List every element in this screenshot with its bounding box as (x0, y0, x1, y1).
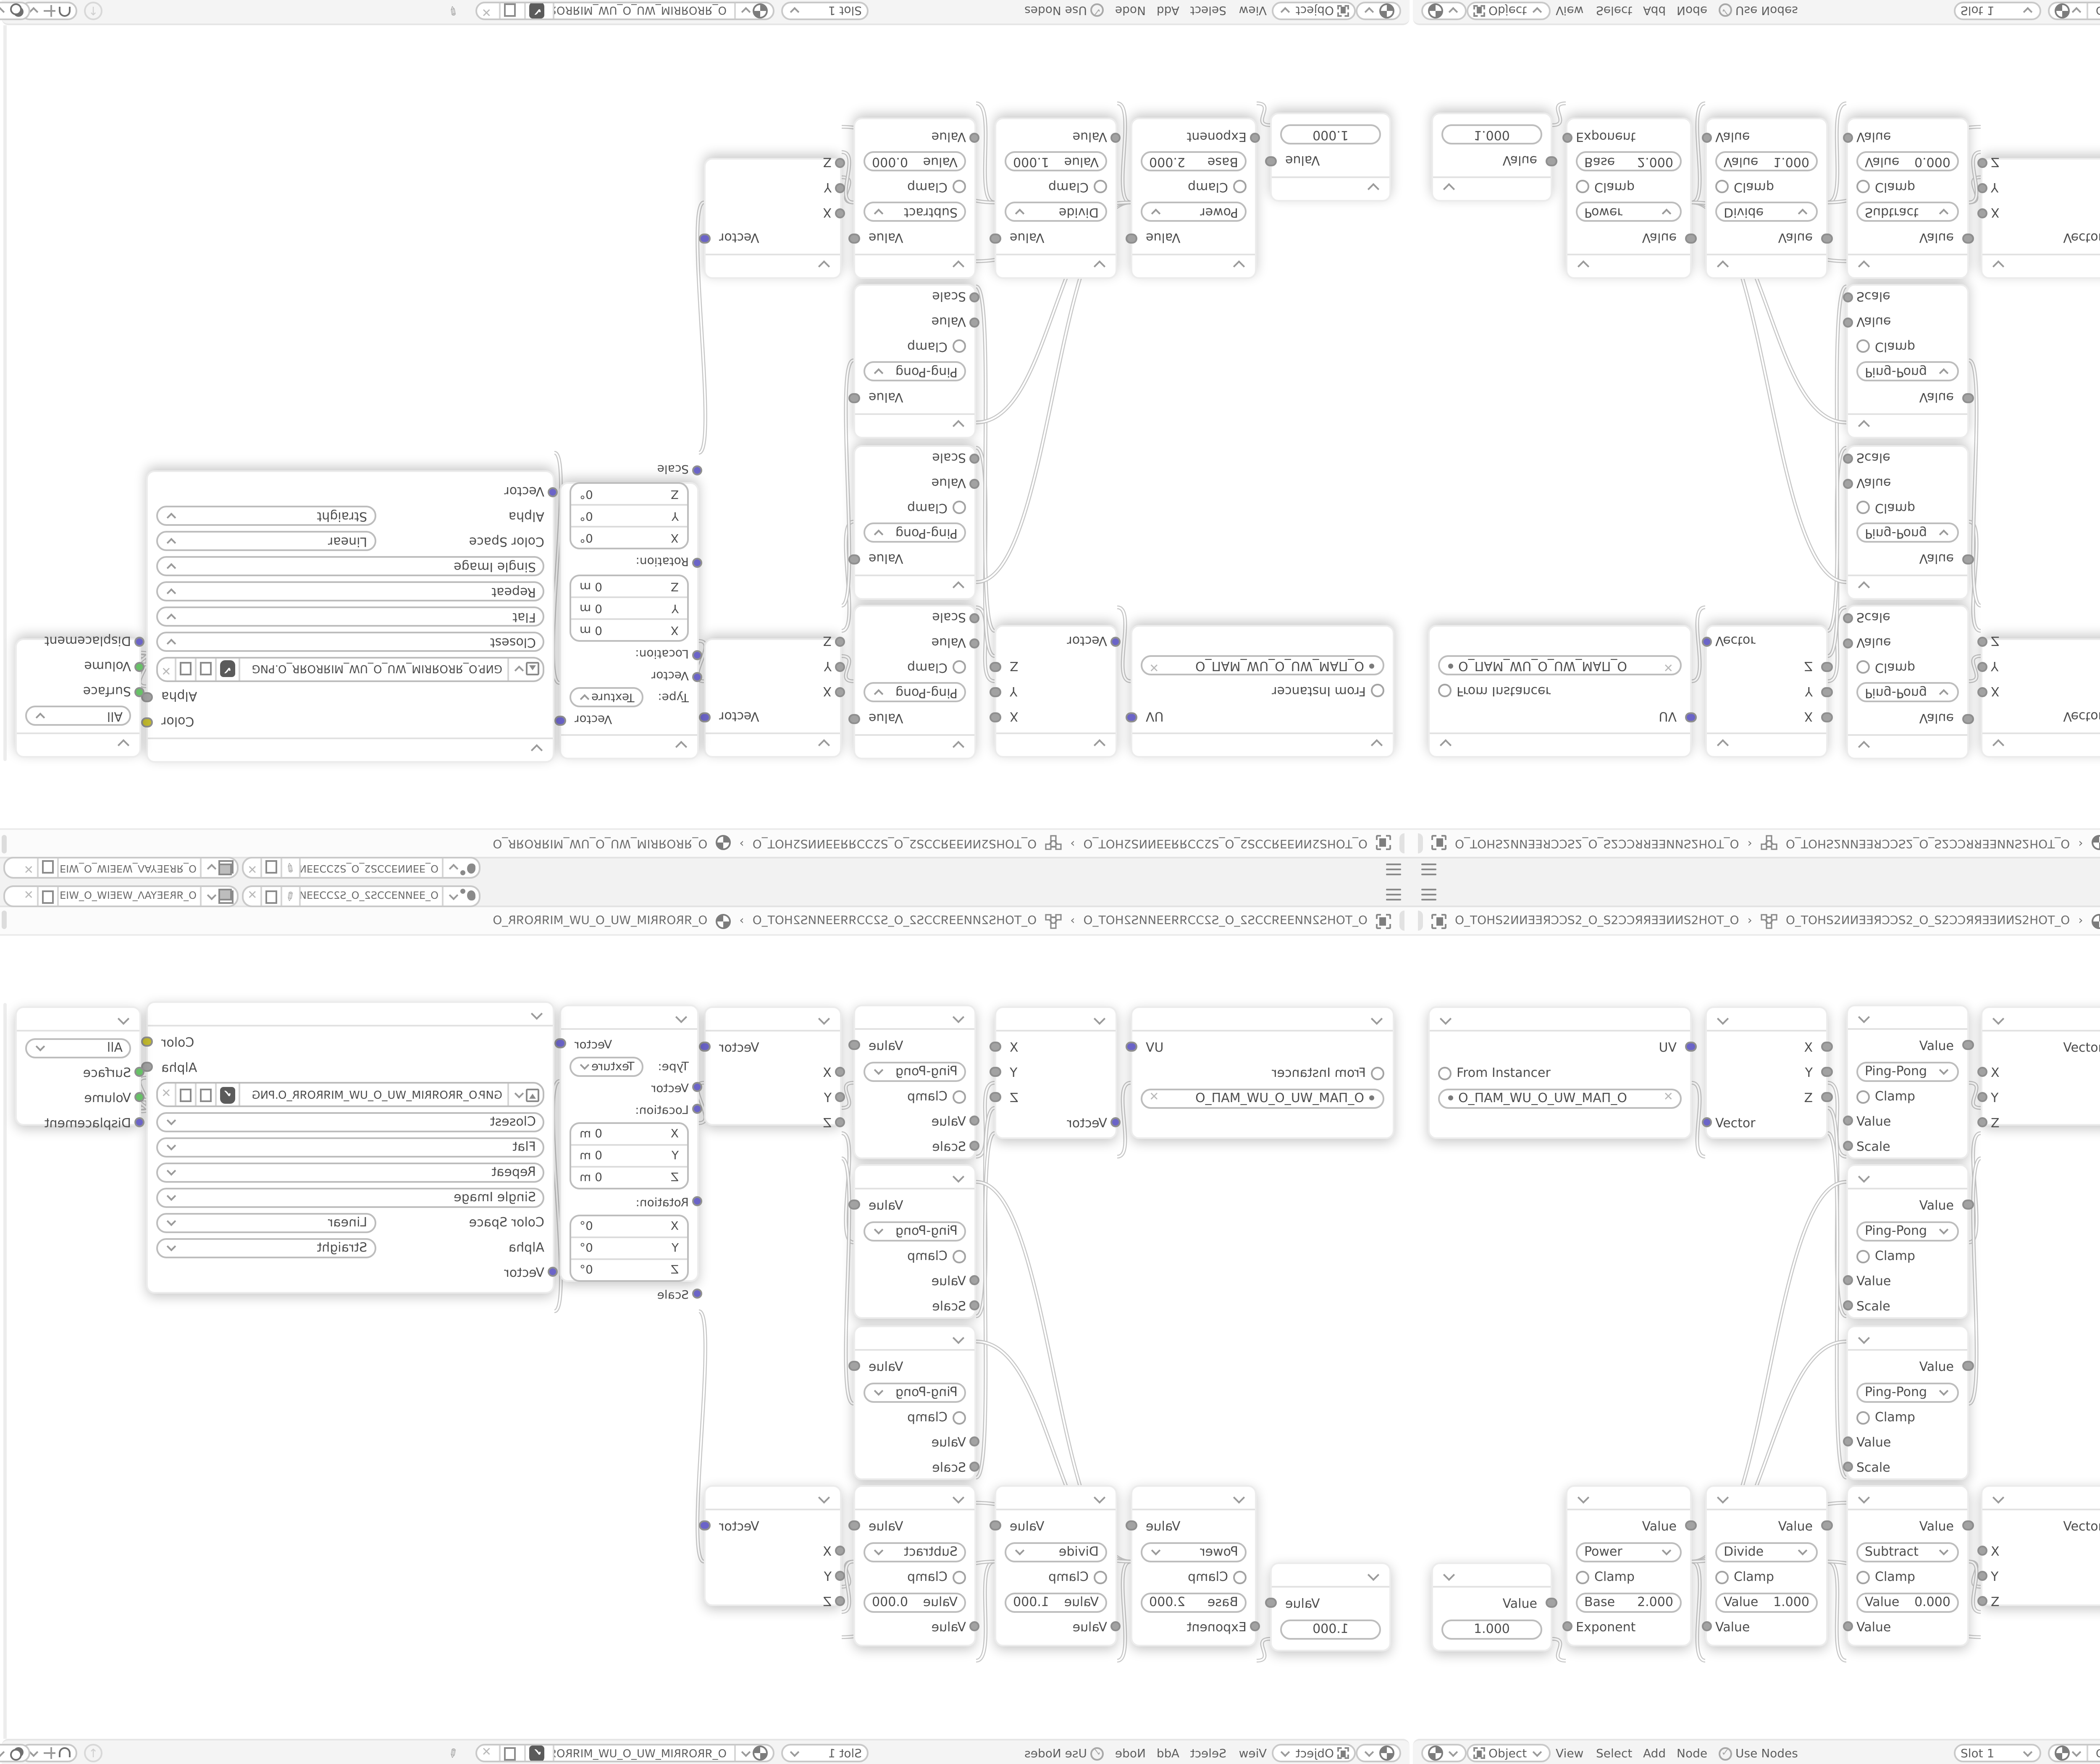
view-layer-icon[interactable] (200, 887, 237, 906)
node-header[interactable] (1707, 254, 1826, 277)
socket-exponent-in[interactable] (1562, 133, 1572, 144)
dropdown-color-space[interactable]: Linear (156, 532, 375, 552)
checkbox-clamp[interactable] (1715, 181, 1729, 194)
new-image-button[interactable] (195, 1084, 215, 1105)
vector-field-y[interactable]: Y0 m (571, 596, 687, 618)
dropdown-divide[interactable]: Divide (1005, 1541, 1107, 1562)
node-header[interactable] (148, 1003, 553, 1026)
node-header[interactable] (1848, 1327, 1967, 1351)
dropdown-alpha[interactable]: Straight (156, 1237, 375, 1257)
node-value[interactable]: Value1.000 (1431, 113, 1552, 202)
vector-field-x[interactable]: X0 m (571, 618, 687, 640)
material-selector[interactable]: O_ЯROЯRIM_WU_O_UW_MIЯROЯR_O ✔ ✕ (2048, 2, 2100, 20)
socket-location-in[interactable] (692, 650, 703, 661)
node-material-output[interactable]: AllSurfaceVolumeDisplacement (15, 638, 141, 758)
node-header[interactable] (1132, 732, 1393, 756)
new-material-button[interactable] (499, 1746, 521, 1761)
dropdown-ping-pong[interactable]: Ping-Pong (864, 1221, 966, 1241)
socket-volume-in[interactable] (134, 1091, 145, 1102)
socket-value-out[interactable] (990, 1520, 1001, 1530)
value-field[interactable]: Value1.000 (1005, 1592, 1107, 1612)
dropdown-power[interactable]: Power (1141, 202, 1247, 223)
menu-view[interactable]: View (1547, 1744, 1592, 1762)
socket-exponent-in[interactable] (1562, 1620, 1572, 1631)
value-field[interactable]: Value1.000 (1005, 152, 1107, 172)
checkbox-clamp[interactable] (953, 501, 966, 515)
view-layer-selector[interactable]: O_ЯRƎEYAΛ_WƎEIW_O_WIƎEW_ΛAYƎEЯR_O ✕ (3, 885, 239, 907)
node-canvas[interactable]: UVFrom InstancerO_ПAM_WU_O_UW_MAП_O✕XYZV… (0, 25, 1411, 828)
node-separate-xyz[interactable]: XYZVector (995, 625, 1117, 758)
uv-map-field[interactable]: O_ПAM_WU_O_UW_MAП_O✕ (1438, 656, 1682, 676)
pack-image-button[interactable] (175, 659, 195, 680)
node-math-subtract[interactable]: ValueSubtractClampValue0.000Value (853, 118, 976, 279)
shader-type-dropdown[interactable]: Object (1272, 2, 1356, 20)
dropdown-divide[interactable]: Divide (1715, 202, 1818, 223)
dropdown-closest[interactable]: Closest (156, 1111, 544, 1131)
pack-image-button[interactable] (175, 1084, 195, 1105)
socket-y-out[interactable] (1821, 687, 1832, 698)
material-browse-icon[interactable] (2050, 3, 2088, 18)
node-header[interactable] (706, 254, 840, 277)
node-mapping[interactable]: VectorType:TextureVectorLocation:X0 mY0 … (559, 482, 699, 759)
pin-icon[interactable]: ✎ (281, 858, 299, 877)
checkbox-clamp[interactable] (1856, 1249, 1870, 1263)
socket-x-in[interactable] (835, 1545, 846, 1556)
socket-scale-in[interactable] (1842, 613, 1853, 624)
checkbox-clamp[interactable] (953, 1089, 966, 1103)
node-header[interactable] (1132, 254, 1255, 277)
node-header[interactable] (1272, 176, 1389, 200)
node-canvas[interactable]: UVFrom InstancerO_ПAM_WU_O_UW_MAП_O✕XYZV… (1411, 25, 2100, 828)
vector-field-x[interactable]: X0° (571, 526, 687, 548)
socket-value-out[interactable] (1685, 1520, 1696, 1530)
node-header[interactable] (1430, 732, 1690, 756)
dropdown-divide[interactable]: Divide (1005, 202, 1107, 223)
material-name[interactable]: O_ЯROЯRIM_WU_O_UW_MIЯROЯR_O (553, 3, 731, 18)
canvas-scrollbar[interactable] (3, 25, 8, 761)
socket-scale-in[interactable] (969, 1140, 980, 1151)
socket-z-in[interactable] (835, 158, 846, 169)
menu-view[interactable]: View (1547, 2, 1592, 20)
dropdown-ping-pong[interactable]: Ping-Pong (1856, 1382, 1959, 1402)
shader-type-dropdown[interactable]: Object (1272, 1744, 1356, 1762)
node-image-texture[interactable]: ColorAlphaGИP.O_ЯROЯRIM_WU_O_UW_MIЯROЯR_… (146, 470, 554, 763)
checkbox-clamp[interactable] (953, 661, 966, 675)
scene-name[interactable]: O_ƎƎИИƎƆƆS2_O_S2ƆƆƎƎИ... (299, 887, 442, 906)
socket-scale-in[interactable] (1842, 1299, 1853, 1310)
vector-field-z[interactable]: Z0° (571, 1260, 687, 1280)
node-header[interactable] (1433, 176, 1551, 200)
uv-map-field[interactable]: O_ПAM_WU_O_UW_MAП_O✕ (1141, 656, 1384, 676)
checkbox-clamp[interactable] (1856, 1410, 1870, 1424)
uv-map-field[interactable]: O_ПAM_WU_O_UW_MAП_O✕ (1141, 1088, 1384, 1108)
socket-vector-out[interactable] (555, 715, 566, 726)
socket-value-out[interactable] (1266, 1597, 1277, 1608)
vector-field-x[interactable]: X0 m (571, 1124, 687, 1146)
socket-z-out[interactable] (990, 1091, 1001, 1102)
scene-icon[interactable] (442, 858, 479, 877)
node-header[interactable] (17, 732, 139, 756)
unlink-material-button[interactable]: ✕ (478, 3, 496, 18)
dropdown-color-space[interactable]: Linear (156, 1212, 375, 1232)
new-view-layer-button[interactable] (37, 887, 57, 906)
scene-icon[interactable] (442, 887, 479, 906)
checkbox-clamp[interactable] (1576, 1570, 1589, 1583)
dropdown-all[interactable]: All (25, 706, 131, 727)
dropdown-subtract[interactable]: Subtract (864, 1541, 966, 1562)
dropdown-closest[interactable]: Closest (156, 633, 544, 653)
socket-value-out[interactable] (1126, 234, 1137, 244)
node-math-subtract[interactable]: ValueSubtractClampValue0.000Value (1846, 1485, 1969, 1646)
socket-exponent-in[interactable] (1250, 133, 1261, 144)
vector-field-z[interactable]: Z0 m (571, 576, 687, 596)
vector-field-y[interactable]: Y0 m (571, 1146, 687, 1168)
vector-field-x[interactable]: X0° (571, 1216, 687, 1238)
use-nodes-checkbox[interactable]: ✓Use Nodes (1024, 1744, 1104, 1762)
dropdown-ping-pong[interactable]: Ping-Pong (864, 523, 966, 543)
node-uv-map[interactable]: UVFrom InstancerO_ПAM_WU_O_UW_MAП_O✕ (1428, 1006, 1692, 1139)
node-header[interactable] (1132, 1487, 1255, 1510)
node-header[interactable] (855, 734, 974, 758)
node-combine-xyz-2[interactable]: VectorXYZ (704, 158, 842, 279)
canvas-scrollbar[interactable] (3, 1003, 8, 1739)
socket-z-in[interactable] (1977, 637, 1987, 648)
image-filename[interactable]: GИP.O_ЯROЯRIM_WU_O_UW_MIЯROЯR_O.PNG (239, 659, 508, 680)
value-field[interactable]: Value0.000 (864, 152, 966, 172)
node-math-divide[interactable]: ValueDivideClampValue1.000Value (995, 1485, 1117, 1646)
fake-user-button[interactable]: ✔ (215, 1084, 239, 1105)
node-combine-xyz-2[interactable]: VectorXYZ (1981, 158, 2100, 279)
fake-user-button[interactable]: ✔ (524, 1746, 549, 1761)
node-header[interactable] (706, 1008, 840, 1032)
gpu-preview-button[interactable]: ↑ (84, 1744, 102, 1762)
socket-value-in[interactable] (1842, 133, 1853, 144)
socket-vector-out[interactable] (700, 1520, 711, 1530)
remove-view-layer-button[interactable]: ✕ (21, 858, 37, 877)
uv-map-field[interactable]: O_ПAM_WU_O_UW_MAП_O✕ (1438, 1088, 1682, 1108)
node-canvas[interactable]: UVFrom InstancerO_ПAM_WU_O_UW_MAП_O✕XYZV… (0, 936, 1411, 1739)
dropdown-power[interactable]: Power (1141, 1541, 1247, 1562)
overlays-toggle[interactable] (0, 2, 30, 20)
dropdown-all[interactable]: All (25, 1037, 131, 1058)
socket-value-in[interactable] (1110, 133, 1121, 144)
socket-value-out[interactable] (849, 1520, 860, 1530)
node-math-pingpong-2[interactable]: ValuePing-PongClampValueScale (1846, 445, 1969, 600)
node-header[interactable] (996, 1487, 1116, 1510)
node-math-pingpong-2[interactable]: ValuePing-PongClampValueScale (1846, 1164, 1969, 1319)
socket-vector-out[interactable] (555, 1038, 566, 1049)
pin-icon[interactable]: ✎ (281, 887, 299, 906)
socket-value-out[interactable] (1266, 156, 1277, 167)
socket-value-in[interactable] (1110, 1620, 1121, 1631)
dropdown-ping-pong[interactable]: Ping-Pong (1856, 362, 1959, 382)
socket-x-out[interactable] (1821, 712, 1832, 723)
socket-x-out[interactable] (1821, 1041, 1832, 1052)
menu-node[interactable]: Node (1107, 1744, 1154, 1762)
material-browse-icon[interactable] (734, 1746, 773, 1761)
fake-user-button[interactable]: ✔ (524, 3, 549, 18)
value-field[interactable]: Base2.000 (1576, 1592, 1682, 1612)
dropdown-subtract[interactable]: Subtract (1856, 202, 1959, 223)
view-layer-icon[interactable] (200, 858, 237, 877)
node-canvas[interactable]: UVFrom InstancerO_ПAM_WU_O_UW_MAП_O✕XYZV… (1411, 936, 2100, 1739)
material-name[interactable]: O_ЯROЯRIM_WU_O_UW_MIЯROЯR_O (2092, 1746, 2100, 1761)
socket-value-out[interactable] (1962, 1520, 1973, 1530)
node-math-divide[interactable]: ValueDivideClampValue1.000Value (1705, 118, 1828, 279)
menu-select[interactable]: Select (1588, 2, 1641, 20)
value-field[interactable]: Value0.000 (864, 1592, 966, 1612)
menu-node[interactable]: Node (1668, 1744, 1716, 1762)
vector-field-z[interactable]: Z0° (571, 484, 687, 504)
node-header[interactable] (1848, 254, 1967, 277)
node-combine-xyz-1[interactable]: VectorXYZ (1981, 1006, 2100, 1126)
socket-scale-in[interactable] (969, 613, 980, 624)
socket-value-out[interactable] (849, 234, 860, 244)
value-field[interactable]: Value1.000 (1715, 1592, 1818, 1612)
value-field[interactable]: 1.000 (1280, 1619, 1381, 1639)
socket-value-in[interactable] (969, 1620, 980, 1631)
unlink-material-button[interactable]: ✕ (478, 1746, 496, 1761)
editor-type-button[interactable] (1356, 1744, 1401, 1762)
image-selector[interactable]: GИP.O_ЯROЯRIM_WU_O_UW_MIЯROЯR_O.PNG✔✕ (156, 1082, 544, 1107)
node-math-pingpong-1[interactable]: ValuePing-PongClampValueScale (1846, 605, 1969, 759)
value-field[interactable]: Base2.000 (1141, 1592, 1247, 1612)
socket-vector-in[interactable] (692, 672, 703, 682)
socket-rotation-in[interactable] (692, 1196, 703, 1207)
menu-select[interactable]: Select (1182, 2, 1235, 20)
socket-value-in[interactable] (1842, 1115, 1853, 1126)
socket-z-in[interactable] (1977, 1595, 1987, 1606)
socket-value-out[interactable] (1962, 554, 1973, 565)
socket-exponent-in[interactable] (1250, 1620, 1261, 1631)
socket-y-in[interactable] (835, 662, 846, 673)
checkbox-clamp[interactable] (1715, 1570, 1729, 1583)
socket-vector-in[interactable] (548, 1266, 559, 1277)
socket-value-in[interactable] (1842, 1436, 1853, 1446)
checkbox-from-instancer[interactable] (1438, 685, 1452, 698)
menu-hamburger-icon[interactable] (1421, 889, 1436, 900)
node-math-pingpong-3[interactable]: ValuePing-PongClampValueScale (1846, 284, 1969, 438)
dropdown-ping-pong[interactable]: Ping-Pong (864, 1382, 966, 1402)
fake-user-button[interactable]: ✔ (215, 659, 239, 680)
editor-type-button[interactable] (1421, 1744, 1467, 1762)
node-header[interactable] (855, 1327, 974, 1351)
vector-field-y[interactable]: Y0° (571, 1238, 687, 1260)
socket-uv-out[interactable] (1685, 1041, 1696, 1052)
checkbox-clamp[interactable] (953, 1570, 966, 1583)
node-header[interactable] (1982, 732, 2100, 756)
socket-scale-in[interactable] (969, 1461, 980, 1472)
node-header[interactable] (1272, 1564, 1389, 1588)
node-header[interactable] (1430, 1008, 1690, 1032)
dropdown-repeat[interactable]: Repeat (156, 1162, 544, 1182)
value-field[interactable]: 1.000 (1441, 125, 1542, 145)
node-math-power[interactable]: ValuePowerClampBase2.000Exponent (1566, 1485, 1692, 1646)
socket-x-out[interactable] (990, 1041, 1001, 1052)
socket-scale-in[interactable] (1842, 292, 1853, 303)
window-edge-handle[interactable] (2, 911, 7, 929)
socket-z-out[interactable] (990, 662, 1001, 673)
node-math-subtract[interactable]: ValueSubtractClampValue0.000Value (853, 1485, 976, 1646)
dropdown-ping-pong[interactable]: Ping-Pong (864, 362, 966, 382)
node-combine-xyz-2[interactable]: VectorXYZ (704, 1485, 842, 1606)
checkbox-clamp[interactable] (1856, 340, 1870, 354)
socket-scale-in[interactable] (692, 1288, 703, 1299)
area-corner-handle[interactable] (1399, 833, 1404, 853)
node-header[interactable] (1567, 254, 1690, 277)
socket-y-out[interactable] (1821, 1066, 1832, 1077)
node-header[interactable] (1132, 1008, 1393, 1032)
use-nodes-checkbox[interactable]: ✓Use Nodes (1024, 2, 1104, 20)
socket-vector-in[interactable] (1110, 1116, 1121, 1127)
socket-value-out[interactable] (1546, 156, 1557, 167)
node-math-power[interactable]: ValuePowerClampBase2.000Exponent (1566, 118, 1692, 279)
node-header[interactable] (996, 732, 1116, 756)
node-math-pingpong-2[interactable]: ValuePing-PongClampValueScale (853, 445, 976, 600)
node-math-pingpong-1[interactable]: ValuePing-PongClampValueScale (853, 1005, 976, 1159)
pin-id-button[interactable]: ✎ (449, 2, 459, 20)
node-header[interactable] (561, 1006, 697, 1030)
dropdown-flat[interactable]: Flat (156, 607, 544, 627)
node-math-pingpong-3[interactable]: ValuePing-PongClampValueScale (853, 1326, 976, 1480)
checkbox-clamp[interactable] (953, 181, 966, 194)
socket-value-out[interactable] (849, 1199, 860, 1210)
socket-vector-out[interactable] (700, 712, 711, 723)
remove-view-layer-button[interactable]: ✕ (21, 887, 37, 906)
node-math-power[interactable]: ValuePowerClampBase2.000Exponent (1131, 118, 1257, 279)
socket-scale-in[interactable] (1842, 1140, 1853, 1151)
socket-x-in[interactable] (1977, 208, 1987, 219)
socket-y-in[interactable] (1977, 662, 1987, 673)
value-field[interactable]: Value1.000 (1715, 152, 1818, 172)
use-nodes-checkbox[interactable]: ✓Use Nodes (1719, 2, 1798, 20)
socket-scale-in[interactable] (969, 1299, 980, 1310)
node-header[interactable] (148, 738, 553, 761)
socket-value-out[interactable] (1962, 393, 1973, 404)
node-material-output[interactable]: AllSurfaceVolumeDisplacement (15, 1006, 141, 1126)
use-nodes-checkbox[interactable]: ✓Use Nodes (1719, 1744, 1798, 1762)
socket-vector-in[interactable] (1701, 637, 1712, 648)
node-math-divide[interactable]: ValueDivideClampValue1.000Value (995, 118, 1117, 279)
node-math-subtract[interactable]: ValueSubtractClampValue0.000Value (1846, 118, 1969, 279)
node-math-power[interactable]: ValuePowerClampBase2.000Exponent (1131, 1485, 1257, 1646)
value-field[interactable]: Base2.000 (1576, 152, 1682, 172)
socket-z-out[interactable] (1821, 662, 1832, 673)
socket-value-in[interactable] (969, 479, 980, 490)
socket-value-out[interactable] (1962, 714, 1973, 725)
dropdown-ping-pong[interactable]: Ping-Pong (1856, 1061, 1959, 1081)
dropdown-ping-pong[interactable]: Ping-Pong (864, 1061, 966, 1081)
node-header[interactable] (996, 1008, 1116, 1032)
checkbox-from-instancer[interactable] (1438, 1066, 1452, 1079)
socket-value-out[interactable] (1546, 1597, 1557, 1608)
menu-select[interactable]: Select (1588, 1744, 1641, 1762)
dropdown-flat[interactable]: Flat (156, 1137, 544, 1157)
socket-color-out[interactable] (142, 717, 153, 728)
node-header[interactable] (855, 575, 974, 598)
socket-value-in[interactable] (1701, 1620, 1712, 1631)
value-field[interactable]: Value0.000 (1856, 1592, 1959, 1612)
socket-value-out[interactable] (1126, 1520, 1137, 1530)
node-header[interactable] (1848, 413, 1967, 437)
slot-dropdown[interactable]: Slot 1 (1954, 1744, 2041, 1762)
socket-vector-in[interactable] (692, 1081, 703, 1092)
slot-dropdown[interactable]: Slot 1 (781, 2, 869, 20)
socket-value-in[interactable] (969, 1115, 980, 1126)
checkbox-clamp[interactable] (953, 340, 966, 354)
dropdown-power[interactable]: Power (1576, 202, 1682, 223)
socket-value-in[interactable] (1842, 638, 1853, 649)
unlink-scene-button[interactable]: ✕ (244, 858, 261, 877)
dropdown-single-image[interactable]: Single Image (156, 557, 544, 577)
socket-vector-in[interactable] (548, 487, 559, 498)
socket-value-in[interactable] (969, 638, 980, 649)
checkbox-clamp[interactable] (1576, 181, 1589, 194)
node-header[interactable] (855, 1487, 974, 1510)
node-header[interactable] (706, 1487, 840, 1510)
dropdown-alpha[interactable]: Straight (156, 507, 375, 527)
menu-hamburger-icon[interactable] (1386, 889, 1401, 900)
node-header[interactable] (1982, 1008, 2100, 1032)
material-selector[interactable]: O_ЯROЯRIM_WU_O_UW_MIЯROЯR_O ✔ ✕ (476, 1744, 775, 1762)
dropdown-ping-pong[interactable]: Ping-Pong (1856, 683, 1959, 703)
socket-value-in[interactable] (969, 133, 980, 144)
scene-selector[interactable]: O_ƎƎИИƎƆƆS2_O_S2ƆƆƎƎИ... ✎ ✕ (242, 885, 480, 907)
node-math-pingpong-1[interactable]: ValuePing-PongClampValueScale (1846, 1005, 1969, 1159)
window-edge-handle[interactable] (2, 835, 7, 853)
dropdown-subtract[interactable]: Subtract (864, 202, 966, 223)
vector-field-y[interactable]: Y0° (571, 504, 687, 526)
node-value[interactable]: Value1.000 (1270, 1562, 1391, 1651)
socket-value-out[interactable] (1821, 234, 1832, 244)
dropdown-divide[interactable]: Divide (1715, 1541, 1818, 1562)
socket-value-out[interactable] (1962, 234, 1973, 244)
value-field[interactable]: 1.000 (1441, 1619, 1542, 1639)
vector-field-z[interactable]: Z0 m (571, 1168, 687, 1188)
checkbox-clamp[interactable] (1856, 1089, 1870, 1103)
node-header[interactable] (1433, 1564, 1551, 1588)
socket-x-in[interactable] (1977, 1545, 1987, 1556)
socket-value-out[interactable] (990, 234, 1001, 244)
unlink-image-button[interactable]: ✕ (158, 1084, 175, 1105)
checkbox-clamp[interactable] (1856, 1570, 1870, 1583)
socket-value-out[interactable] (1962, 1039, 1973, 1050)
scene-name[interactable]: O_ƎƎИИƎƆƆS2_O_S2ƆƆƎƎИ... (299, 858, 442, 877)
material-selector[interactable]: O_ЯROЯRIM_WU_O_UW_MIЯROЯR_O ✔ ✕ (476, 2, 775, 20)
node-math-pingpong-3[interactable]: ValuePing-PongClampValueScale (853, 284, 976, 438)
material-name[interactable]: O_ЯROЯRIM_WU_O_UW_MIЯROЯR_O (553, 1746, 731, 1761)
node-separate-xyz[interactable]: XYZVector (1705, 625, 1828, 758)
node-math-pingpong-2[interactable]: ValuePing-PongClampValueScale (853, 1164, 976, 1319)
node-separate-xyz[interactable]: XYZVector (1705, 1006, 1828, 1139)
pin-id-button[interactable]: ✎ (449, 1744, 459, 1762)
gpu-preview-button[interactable]: ↑ (84, 2, 102, 20)
socket-vector-out[interactable] (700, 1041, 711, 1052)
view-layer-selector[interactable]: O_ЯRƎEYAΛ_WƎEIW_O_WIƎEW_ΛAYƎEЯR_O ✕ (3, 857, 239, 879)
view-layer-name[interactable]: O_ЯRƎEYAΛ_WƎEIW_O_WIƎEW_ΛAYƎEЯR_O (57, 858, 200, 877)
socket-x-in[interactable] (835, 208, 846, 219)
menu-node[interactable]: Node (1668, 2, 1716, 20)
socket-rotation-in[interactable] (692, 557, 703, 568)
node-header[interactable] (1848, 1487, 1967, 1510)
socket-z-in[interactable] (1977, 158, 1987, 169)
value-field[interactable]: Base2.000 (1141, 152, 1247, 172)
node-header[interactable] (855, 1006, 974, 1030)
dropdown-power[interactable]: Power (1576, 1541, 1682, 1562)
checkbox-clamp[interactable] (1856, 661, 1870, 675)
socket-x-in[interactable] (1977, 687, 1987, 698)
socket-vector-out[interactable] (700, 234, 711, 244)
